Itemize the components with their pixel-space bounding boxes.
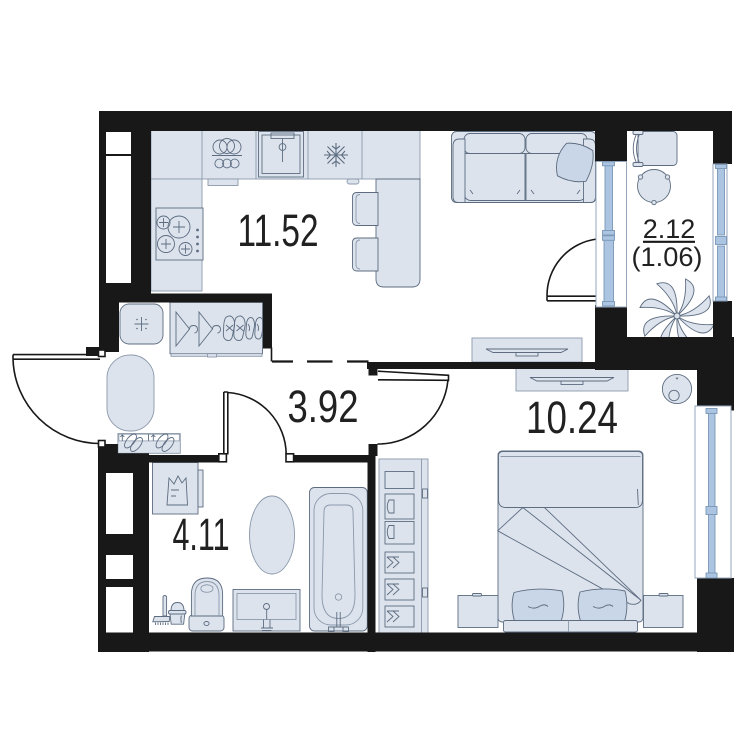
svg-text:11.52: 11.52: [238, 205, 319, 256]
svg-text:2.12: 2.12: [643, 214, 696, 244]
svg-text:10.24: 10.24: [526, 392, 618, 443]
svg-text:(1.06): (1.06): [632, 242, 703, 272]
svg-text:3.92: 3.92: [288, 381, 359, 432]
svg-text:4.11: 4.11: [173, 509, 230, 560]
